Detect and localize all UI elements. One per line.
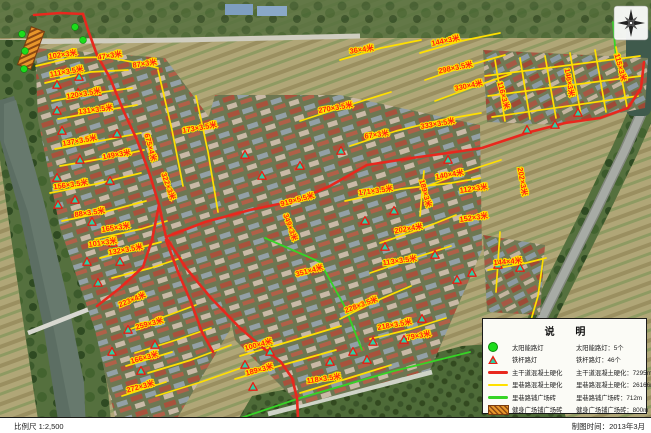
solar-light-marker [72, 24, 79, 31]
solar-light-marker [80, 37, 87, 44]
legend-item-plaza-road: 里巷路铺广场砖里巷路铺广场砖：712m [488, 391, 642, 404]
legend-item-value: 里巷路铺广场砖：712m [576, 393, 642, 402]
legend-item-label: 健身广场铺广场砖 [512, 405, 576, 414]
legend-item-value: 主干道混凝土硬化：7295m [576, 368, 651, 377]
map-date-label: 制图时间：2013年3月 [572, 421, 645, 432]
legend-item-value: 太阳能路灯：5个 [576, 343, 624, 352]
map-scale-label: 比例尺 1:2,500 [14, 421, 64, 432]
legend-item-value: 里巷路混凝土硬化：26166m [576, 380, 651, 389]
legend-item-label: 主干道混凝土硬化 [512, 368, 576, 377]
fitness-plaza-symbol [488, 405, 509, 415]
legend-rows: 太阳能路灯太阳能路灯：5个铁杆路灯铁杆路灯：46个主干道混凝土硬化主干道混凝土硬… [488, 341, 642, 416]
solar-light-symbol [488, 342, 498, 352]
legend-item-value: 健身广场铺广场砖：800m [576, 405, 648, 414]
pole-light-symbol [488, 355, 498, 364]
solar-light-marker [22, 48, 29, 55]
village-plan-map: 102×3米47×3米87×3米111×3.5米120×3.5米131×3.5米… [0, 0, 651, 433]
compass-rose [614, 6, 648, 40]
legend-item-label: 铁杆路灯 [512, 355, 576, 364]
legend-item-main-road: 主干道混凝土硬化主干道混凝土硬化：7295m [488, 366, 642, 379]
legend-item-label: 里巷路混凝土硬化 [512, 380, 576, 389]
legend-item-pole-light: 铁杆路灯铁杆路灯：46个 [488, 354, 642, 367]
footer-bar: 比例尺 1:2,500 制图时间：2013年3月 [0, 417, 651, 433]
legend-title: 说 明 [497, 323, 642, 338]
main-road-symbol [488, 371, 508, 374]
legend-item-alley-road: 里巷路混凝土硬化里巷路混凝土硬化：26166m [488, 379, 642, 392]
legend-item-label: 太阳能路灯 [512, 343, 576, 352]
solar-light-marker [21, 66, 28, 73]
legend-item-solar-light: 太阳能路灯太阳能路灯：5个 [488, 341, 642, 354]
legend-box: 说 明 太阳能路灯太阳能路灯：5个铁杆路灯铁杆路灯：46个主干道混凝土硬化主干道… [482, 318, 647, 414]
plaza-road-symbol [488, 396, 508, 399]
legend-item-fitness-plaza: 健身广场铺广场砖健身广场铺广场砖：800m [488, 404, 642, 417]
alley-road-symbol [488, 384, 508, 387]
legend-item-label: 里巷路铺广场砖 [512, 393, 576, 402]
solar-light-marker [19, 31, 26, 38]
legend-item-value: 铁杆路灯：46个 [576, 355, 621, 364]
